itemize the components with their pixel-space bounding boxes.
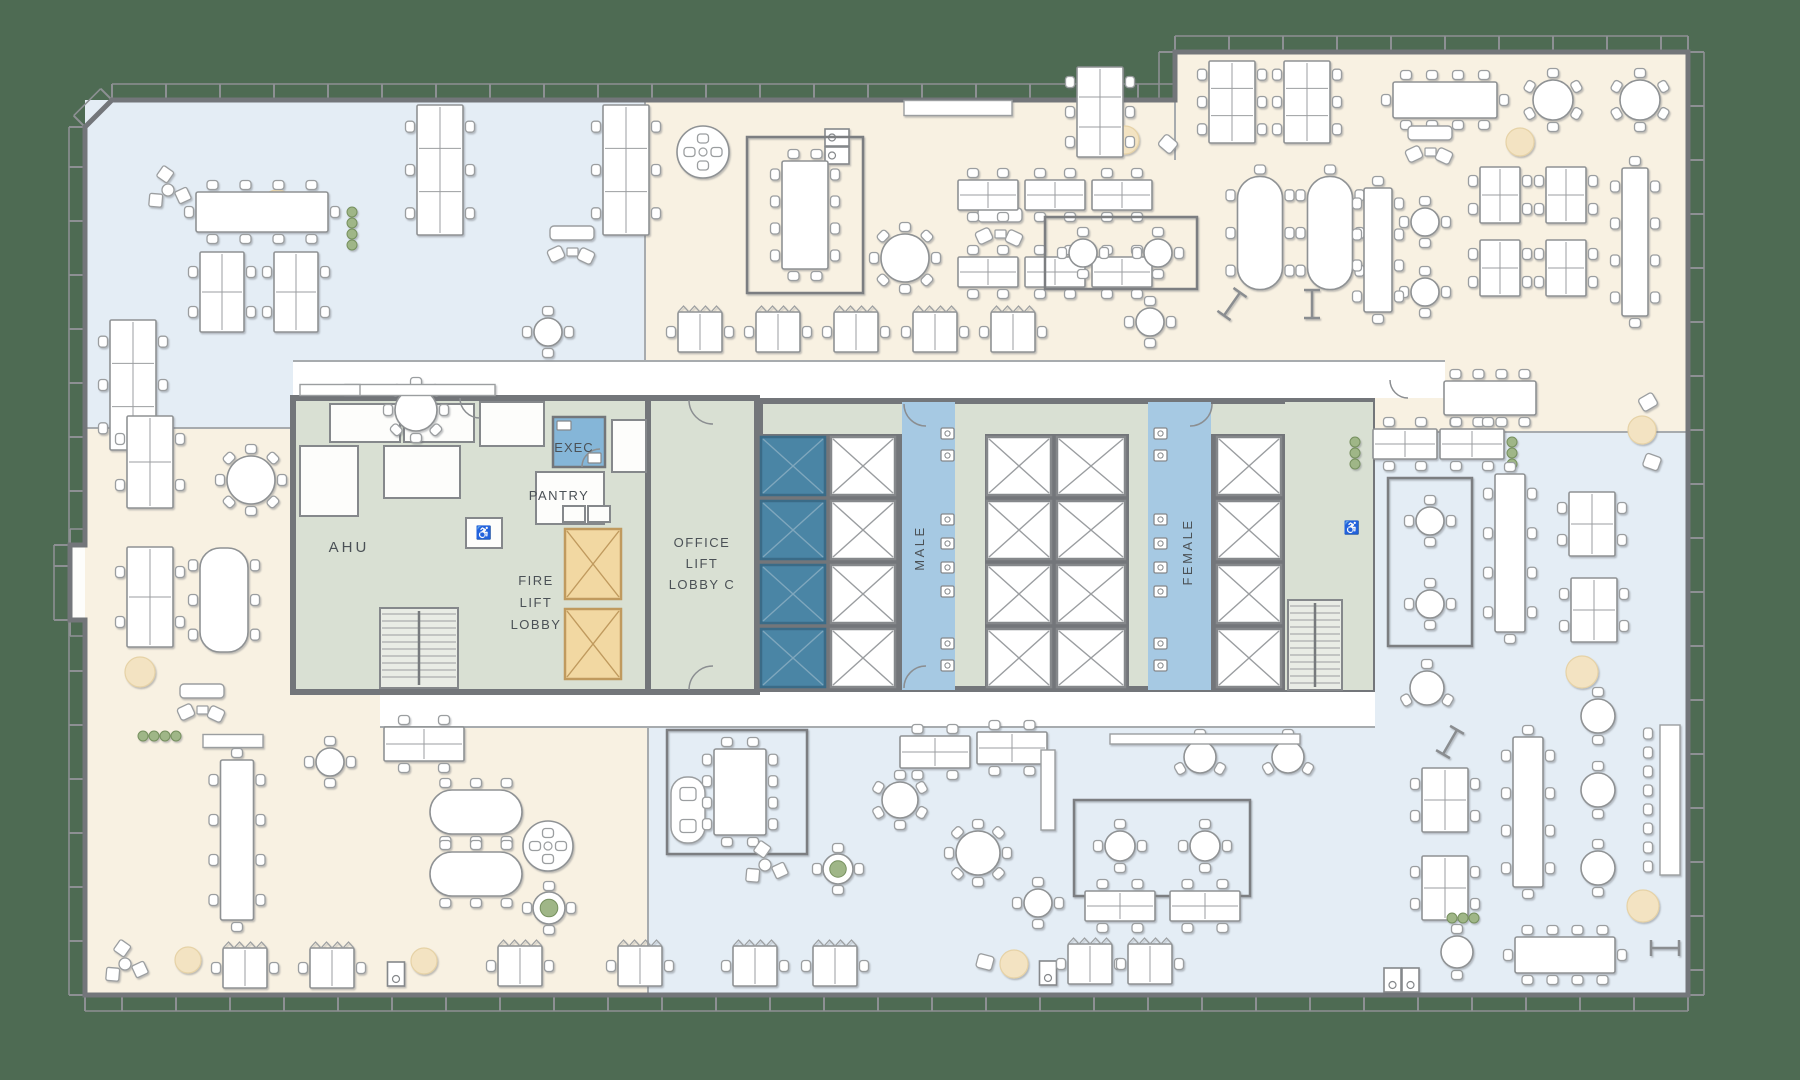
chair [1425,538,1436,547]
chair [543,349,554,358]
meeting-table [1495,474,1525,632]
chair [1522,926,1533,935]
core-room [480,402,544,446]
chair [1502,825,1511,836]
chair [99,336,108,347]
core-area-sage [955,404,985,686]
chair [1651,218,1660,229]
chair [325,737,336,746]
chair [1003,848,1012,859]
chair [1453,121,1464,130]
chair [1547,926,1558,935]
chair [1597,976,1608,985]
chair [1469,277,1478,288]
chair [273,235,284,244]
planter [160,731,170,741]
chair [439,716,450,725]
core-room [384,446,460,498]
chair [1484,607,1493,618]
pinwheel-table [759,859,771,871]
pinwheel-seat [106,967,120,981]
chair [1589,249,1598,260]
chair [216,475,225,486]
chair [1427,71,1438,80]
chair [1353,260,1362,271]
meeting-table [430,790,522,834]
meeting-table [1393,82,1497,118]
planter [347,240,357,250]
chair [1425,496,1436,505]
chair [947,725,958,734]
chair [1145,297,1156,306]
round-table [1069,239,1097,267]
chair [1395,229,1404,240]
chair [176,567,185,578]
chair [1138,841,1147,852]
chair [900,223,911,232]
chair [1033,878,1044,887]
rug-circle [125,657,155,687]
chair [212,963,221,974]
chair [1528,488,1537,499]
chair [1558,535,1567,546]
chair [652,208,661,219]
round-table [882,782,918,818]
cabinet [1110,734,1300,744]
round-table [1411,278,1439,306]
chair [1258,69,1267,80]
pinwheel-table [119,958,131,970]
chair [998,246,1009,255]
chair [968,213,979,222]
chair [251,629,260,640]
chair [256,855,265,866]
chair [895,821,906,830]
chair [703,797,712,808]
chair [722,738,733,747]
chair [347,757,356,768]
chair [973,820,984,829]
chair [1024,721,1035,730]
round-table [1184,741,1216,773]
chair [771,223,780,234]
chair [698,134,709,143]
chair [769,776,778,787]
chair [1353,229,1362,240]
chair [592,121,601,132]
chair [263,307,272,318]
planter [1458,913,1468,923]
chair [1442,217,1451,228]
chair [1125,317,1134,328]
chair [1473,370,1484,379]
chair [973,878,984,887]
chair [1273,124,1282,135]
chair [1447,599,1456,610]
chair [1226,265,1235,276]
cabinet [345,385,495,396]
chair [1058,248,1067,259]
chair [831,196,840,207]
toilet-fixture [1154,514,1167,525]
round-table [1272,741,1304,773]
chair [1505,463,1516,472]
rug-circle [1627,890,1659,922]
chair [811,150,822,159]
chair [1422,660,1433,669]
core-area-sage [763,404,1365,434]
chair [1502,863,1511,874]
chair [1425,621,1436,630]
chair [1198,97,1207,108]
chair [592,165,601,176]
chair [1132,880,1143,889]
chair [1420,197,1431,206]
chair [1502,788,1511,799]
chair [1451,418,1462,427]
core-room [300,446,358,516]
chair [306,235,317,244]
rug-circle [1506,128,1534,156]
chair [189,629,198,640]
chair [399,764,410,773]
table-center [544,842,552,850]
chair [256,895,265,906]
sofa [550,226,594,240]
label-office-lift-lobby-line1: OFFICE [674,535,731,550]
cabinet [203,735,263,748]
planter [149,731,159,741]
chair [1547,976,1558,985]
chair [1065,290,1076,299]
chair [543,855,554,864]
table-plant [540,899,558,917]
toilet-fixture [1154,428,1167,439]
chair [530,842,541,851]
chair [487,961,496,972]
chair [771,196,780,207]
chair [1505,635,1516,644]
toilet-fixture [1154,562,1167,573]
chair [769,754,778,765]
chair [1057,959,1066,970]
chair [1471,867,1480,878]
cabinet [1660,725,1680,875]
chair [565,327,574,338]
chair [1401,71,1412,80]
chair [1038,327,1047,338]
rug-circle [175,947,201,973]
chair [968,169,979,178]
chair [209,855,218,866]
meeting-table [1622,168,1648,316]
coffee-table [995,230,1006,238]
chair [722,961,731,972]
meeting-table [714,749,766,835]
chair [1066,137,1075,148]
chair [299,963,308,974]
chair [1447,516,1456,527]
chair [769,797,778,808]
meeting-table [200,548,248,652]
chair [399,716,410,725]
chair [912,725,923,734]
icon-accessible-wc-west: ♿ [476,525,492,540]
chair [1255,165,1266,174]
chair [185,207,194,218]
chair [902,327,911,338]
wc-pair [1384,968,1419,992]
plan-svg: AHUFIRELIFTLOBBYEXECPANTRYOFFICELIFTLOBB… [0,0,1800,1080]
chair [251,595,260,606]
chair [321,267,330,278]
chair [652,121,661,132]
chair [1651,255,1660,266]
chair [1519,418,1530,427]
round-table [956,831,1000,875]
toilet-fixture [941,638,954,649]
toilet-fixture [941,586,954,597]
chair [1296,228,1305,239]
chair [1452,925,1463,934]
chair [1644,842,1653,853]
icon-accessible-wc-east: ♿ [1344,520,1360,535]
chair [945,848,954,859]
chair [667,327,676,338]
chair [471,841,482,850]
chair [698,161,709,170]
chair [1611,292,1620,303]
chair [1548,69,1559,78]
chair [1644,823,1653,834]
toilet-fixture [1154,450,1167,461]
chair [833,886,844,895]
chair [1126,137,1135,148]
chair [1484,528,1493,539]
chair [711,148,722,157]
chair [501,841,512,850]
chair [189,560,198,571]
chair [232,749,243,758]
zone-corridor-south [380,692,1375,727]
chair [998,290,1009,299]
chair [745,327,754,338]
toilet-fixture [941,514,954,525]
chair [855,864,864,875]
label-male: MALE [912,525,927,570]
chair [1644,861,1653,872]
chair [932,253,941,264]
chair [968,246,979,255]
round-table [1144,239,1172,267]
chair [1644,747,1653,758]
planter [138,731,148,741]
chair [321,307,330,318]
label-office-lift-lobby-line2: LIFT [686,556,719,571]
meeting-table [782,161,828,269]
chair [722,838,733,847]
chair [1546,750,1555,761]
chair [189,307,198,318]
chair [207,235,218,244]
chair [1483,462,1494,471]
chair [1560,621,1569,632]
chair [1273,97,1282,108]
chair [607,961,616,972]
meeting-table [221,760,254,920]
chair [440,405,449,416]
chair [788,150,799,159]
label-pantry: PANTRY [529,488,590,503]
chair [900,285,911,294]
chair [116,567,125,578]
chair [725,327,734,338]
chair [1035,169,1046,178]
chair [1644,804,1653,815]
chair [189,267,198,278]
chair [246,445,257,454]
label-exec: EXEC [554,440,593,455]
chair [1411,811,1420,822]
chair [1384,418,1395,427]
chair [1226,228,1235,239]
chair [411,434,422,443]
chair [1258,97,1267,108]
chair [1620,621,1629,632]
chair [1102,290,1113,299]
toilet-fixture [1154,638,1167,649]
round-table [1410,671,1444,705]
chair [1066,77,1075,88]
chair [176,617,185,628]
chair [256,815,265,826]
chair [556,842,567,851]
chair [1024,767,1035,776]
chair [543,829,554,838]
chair [1597,926,1608,935]
round-table [881,234,929,282]
toilet-fixture [941,428,954,439]
chair [1611,255,1620,266]
chair [501,779,512,788]
core-room [612,420,646,472]
chair [1420,239,1431,248]
chair [1097,924,1108,933]
chair [1620,589,1629,600]
chair [1175,959,1184,970]
chair [831,250,840,261]
chair [1593,840,1604,849]
chair [1618,535,1627,546]
chair [1384,462,1395,471]
chair [270,963,279,974]
chair [811,272,822,281]
chair [543,307,554,316]
coffee-table [1425,148,1436,156]
chair [1469,176,1478,187]
chair [1560,589,1569,600]
chair [466,165,475,176]
chair [306,181,317,190]
chair [1496,418,1507,427]
chair [1484,567,1493,578]
chair [1296,190,1305,201]
cabinet [904,101,1012,116]
chair [273,181,284,190]
round-table [316,748,344,776]
chair [1528,607,1537,618]
chair [1395,260,1404,271]
chair [544,882,555,891]
sofa [180,684,224,698]
round-table [1581,699,1615,733]
chair [1611,181,1620,192]
chair [1593,888,1604,897]
chair [1273,69,1282,80]
chair [813,864,822,875]
chair [788,272,799,281]
chair [1593,736,1604,745]
chair [1405,599,1414,610]
chair [1519,370,1530,379]
chair [207,181,218,190]
chair [247,267,256,278]
planter [1507,437,1517,447]
toilet-fixture [941,450,954,461]
chair [263,267,272,278]
chair [1126,77,1135,88]
chair [240,181,251,190]
chair [1618,950,1627,961]
pinwheel-seat [746,868,760,882]
chair [1442,287,1451,298]
chair [1217,880,1228,889]
chair [209,775,218,786]
chair [989,767,1000,776]
chair [176,434,185,445]
chair [771,250,780,261]
chair [466,121,475,132]
chair [680,820,696,833]
exec-wc-basin [557,421,571,430]
chair [1528,567,1537,578]
chair [1630,319,1641,328]
chair [1469,204,1478,215]
chair [278,475,287,486]
chair [1469,249,1478,260]
coffee-table [197,706,208,714]
chair [305,757,314,768]
planter [1469,913,1479,923]
chair [1200,820,1211,829]
chair [1644,766,1653,777]
chair [1611,218,1620,229]
chair [1258,124,1267,135]
chair [99,380,108,391]
label-fire-lift-lobby-line1: FIRE [518,573,554,588]
chair [1217,924,1228,933]
chair [471,779,482,788]
chair [247,307,256,318]
chair [1500,95,1509,106]
chair [440,779,451,788]
label-fire-lift-lobby-line3: LOBBY [511,617,562,632]
chair [567,903,576,914]
floor-plan: AHUFIRELIFTLOBBYEXECPANTRYOFFICELIFTLOBB… [0,0,1800,1080]
chair [159,336,168,347]
cabinet [1041,750,1055,830]
chair [1373,315,1384,324]
